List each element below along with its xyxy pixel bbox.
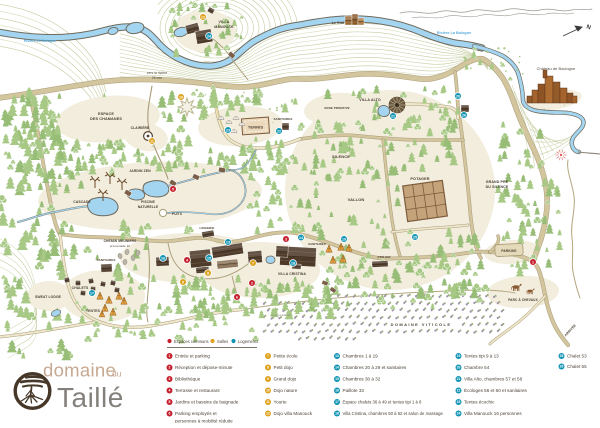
svg-text:DES CHAMANES: DES CHAMANES <box>90 117 122 121</box>
svg-text:CASCADE: CASCADE <box>73 200 91 204</box>
svg-text:promenade 1h: promenade 1h <box>110 244 131 248</box>
svg-text:11: 11 <box>266 400 270 404</box>
svg-text:1: 1 <box>532 260 534 264</box>
svg-text:Tentes tipi 9 à 13: Tentes tipi 9 à 13 <box>464 354 499 359</box>
svg-text:Taillé: Taillé <box>57 382 124 413</box>
svg-text:13: 13 <box>226 240 230 244</box>
svg-text:7: 7 <box>267 354 269 358</box>
svg-text:ZONE PRIMITIVE: ZONE PRIMITIVE <box>324 106 350 110</box>
svg-text:VILLA: VILLA <box>219 20 230 24</box>
svg-text:ESPACE: ESPACE <box>98 112 114 116</box>
svg-text:15: 15 <box>207 256 211 260</box>
svg-text:10: 10 <box>179 95 183 99</box>
svg-text:Chambres 1 à 19: Chambres 1 à 19 <box>343 354 379 359</box>
svg-text:Dojo villa Manouck: Dojo villa Manouck <box>274 411 313 416</box>
svg-text:TENNIS: TENNIS <box>248 125 263 130</box>
svg-text:VILLA CRISTINA: VILLA CRISTINA <box>278 272 306 276</box>
svg-text:Le Gral: Le Gral <box>332 21 344 25</box>
svg-text:CHALETS: CHALETS <box>72 286 89 290</box>
svg-text:SWEAT LODGE: SWEAT LODGE <box>35 295 62 299</box>
svg-text:domaine: domaine <box>43 360 116 381</box>
svg-text:TENTES: TENTES <box>86 309 101 313</box>
svg-text:16: 16 <box>161 256 165 260</box>
svg-text:24: 24 <box>207 34 211 38</box>
svg-text:Chambres 20 à 29 et sanitaires: Chambres 20 à 29 et sanitaires <box>343 365 408 370</box>
svg-text:Entrée et parking: Entrée et parking <box>175 354 210 359</box>
svg-text:Bibliothèque: Bibliothèque <box>175 377 201 382</box>
svg-text:Chalet 55: Chalet 55 <box>567 364 587 369</box>
svg-text:Villa Cristina, chambres 50 à: Villa Cristina, chambres 50 à 52 et salo… <box>343 411 444 416</box>
svg-text:26: 26 <box>560 365 564 369</box>
svg-text:9: 9 <box>267 377 269 381</box>
svg-text:POTAGER: POTAGER <box>410 177 429 181</box>
svg-text:Petit dojo: Petit dojo <box>274 365 294 370</box>
svg-text:8: 8 <box>267 366 269 370</box>
svg-text:Jardins et bassins de baignade: Jardins et bassins de baignade <box>175 400 239 405</box>
svg-text:personnes à mobilité réduite: personnes à mobilité réduite <box>175 419 233 423</box>
svg-text:MANOUCK: MANOUCK <box>214 25 234 29</box>
svg-text:PUITS: PUITS <box>172 212 183 216</box>
svg-text:PARKING: PARKING <box>501 249 517 253</box>
svg-text:Yourte: Yourte <box>274 400 288 405</box>
svg-text:3: 3 <box>285 237 287 241</box>
svg-text:vers la rivière: vers la rivière <box>147 71 168 75</box>
svg-text:du: du <box>112 369 122 379</box>
svg-text:5: 5 <box>169 400 171 404</box>
svg-text:JARDIN ZEN: JARDIN ZEN <box>129 169 151 173</box>
svg-text:18: 18 <box>335 412 339 416</box>
svg-text:21: 21 <box>457 377 461 381</box>
svg-text:Paillote 33: Paillote 33 <box>343 388 365 393</box>
svg-text:Logements: Logements <box>238 339 258 344</box>
svg-text:Parking employés et: Parking employés et <box>175 411 217 416</box>
svg-text:Dojo nature: Dojo nature <box>274 388 298 393</box>
svg-text:PISCINE: PISCINE <box>141 200 156 204</box>
svg-text:Chalet 53: Chalet 53 <box>567 354 587 359</box>
svg-text:Espaces communs: Espaces communs <box>174 339 209 344</box>
svg-text:Grand dojo: Grand dojo <box>274 377 297 382</box>
svg-text:6: 6 <box>236 295 238 299</box>
svg-text:13: 13 <box>335 354 339 358</box>
svg-text:promenade 5h: promenade 5h <box>271 313 291 317</box>
svg-text:22: 22 <box>277 129 281 133</box>
svg-text:20: 20 <box>457 366 461 370</box>
svg-text:VILLA ALTO: VILLA ALTO <box>359 98 381 102</box>
svg-text:1: 1 <box>169 354 171 358</box>
svg-text:DOMAINE VITICOLE: DOMAINE VITICOLE <box>391 322 452 327</box>
svg-text:11: 11 <box>150 139 154 143</box>
svg-text:7: 7 <box>252 261 254 265</box>
svg-text:19: 19 <box>342 237 346 241</box>
svg-text:2: 2 <box>251 281 253 285</box>
svg-text:Rivière La Bologne: Rivière La Bologne <box>24 39 56 43</box>
svg-text:Petite école: Petite école <box>274 354 298 359</box>
svg-text:17: 17 <box>90 291 94 295</box>
svg-text:SANITAIRES: SANITAIRES <box>274 117 293 121</box>
svg-text:Salles: Salles <box>217 339 228 344</box>
svg-text:12: 12 <box>266 412 270 416</box>
svg-text:SANITAIRES: SANITAIRES <box>97 258 116 262</box>
svg-text:14: 14 <box>335 366 339 370</box>
svg-text:Espace chalets 36 à 49 et tent: Espace chalets 36 à 49 et tentes tipi 1 … <box>343 400 423 405</box>
svg-text:DU SILENCE: DU SILENCE <box>486 185 509 189</box>
svg-text:5: 5 <box>172 187 174 191</box>
svg-text:Réception et dépose-minute: Réception et dépose-minute <box>175 365 233 370</box>
svg-text:17: 17 <box>335 400 339 404</box>
svg-text:Terrasse et restaurant: Terrasse et restaurant <box>175 388 220 393</box>
svg-text:SILENCE: SILENCE <box>332 154 350 159</box>
svg-text:NATURELLE: NATURELLE <box>138 205 159 209</box>
svg-text:16: 16 <box>335 389 339 393</box>
svg-text:26: 26 <box>462 113 466 117</box>
svg-text:24: 24 <box>457 412 461 416</box>
svg-text:25 min: 25 min <box>152 76 162 80</box>
svg-text:12: 12 <box>201 15 205 19</box>
svg-text:14: 14 <box>299 236 303 240</box>
svg-text:Villa Manouck 16 personnes: Villa Manouck 16 personnes <box>464 411 522 416</box>
svg-text:SANITAIRES: SANITAIRES <box>308 242 326 246</box>
svg-text:GRAND PRÉ: GRAND PRÉ <box>486 179 509 184</box>
svg-text:Écologes 56 et 60 et sanitaire: Écologes 56 et 60 et sanitaires <box>464 387 528 393</box>
svg-text:25: 25 <box>560 354 564 358</box>
svg-text:Tentes écochic: Tentes écochic <box>464 400 495 405</box>
svg-text:CLAIRIÈRE: CLAIRIÈRE <box>131 125 150 130</box>
svg-text:15: 15 <box>335 377 339 381</box>
svg-text:21: 21 <box>391 114 395 118</box>
svg-text:4: 4 <box>169 389 171 393</box>
svg-text:VALLON: VALLON <box>348 197 365 202</box>
svg-text:19: 19 <box>457 354 461 358</box>
svg-text:2: 2 <box>169 366 171 370</box>
svg-text:Rivière La Bologne: Rivière La Bologne <box>437 31 471 35</box>
svg-text:23: 23 <box>226 128 230 132</box>
svg-text:8: 8 <box>207 271 209 275</box>
svg-text:20: 20 <box>456 94 460 98</box>
svg-text:Villa Alto, chambres 57 et 58: Villa Alto, chambres 57 et 58 <box>464 377 523 382</box>
svg-text:22: 22 <box>457 389 461 393</box>
svg-text:18: 18 <box>291 261 295 265</box>
svg-text:LINGERIE: LINGERIE <box>200 226 215 230</box>
svg-text:4: 4 <box>186 258 188 262</box>
svg-text:10: 10 <box>266 389 270 393</box>
svg-text:CHEMIN MEUNIERS: CHEMIN MEUNIERS <box>104 239 138 243</box>
svg-text:Chambre 54: Chambre 54 <box>464 365 490 370</box>
svg-text:6: 6 <box>169 412 171 416</box>
svg-text:ATELIER: ATELIER <box>377 255 391 259</box>
svg-text:3: 3 <box>169 377 171 381</box>
svg-text:Château de Boulogne: Château de Boulogne <box>537 67 576 71</box>
svg-text:9: 9 <box>182 280 184 284</box>
svg-text:25: 25 <box>413 235 417 239</box>
svg-text:23: 23 <box>457 400 461 404</box>
svg-text:PARC À CHEVAUX: PARC À CHEVAUX <box>508 297 538 302</box>
svg-text:Chambres 30 à 32: Chambres 30 à 32 <box>343 377 381 382</box>
